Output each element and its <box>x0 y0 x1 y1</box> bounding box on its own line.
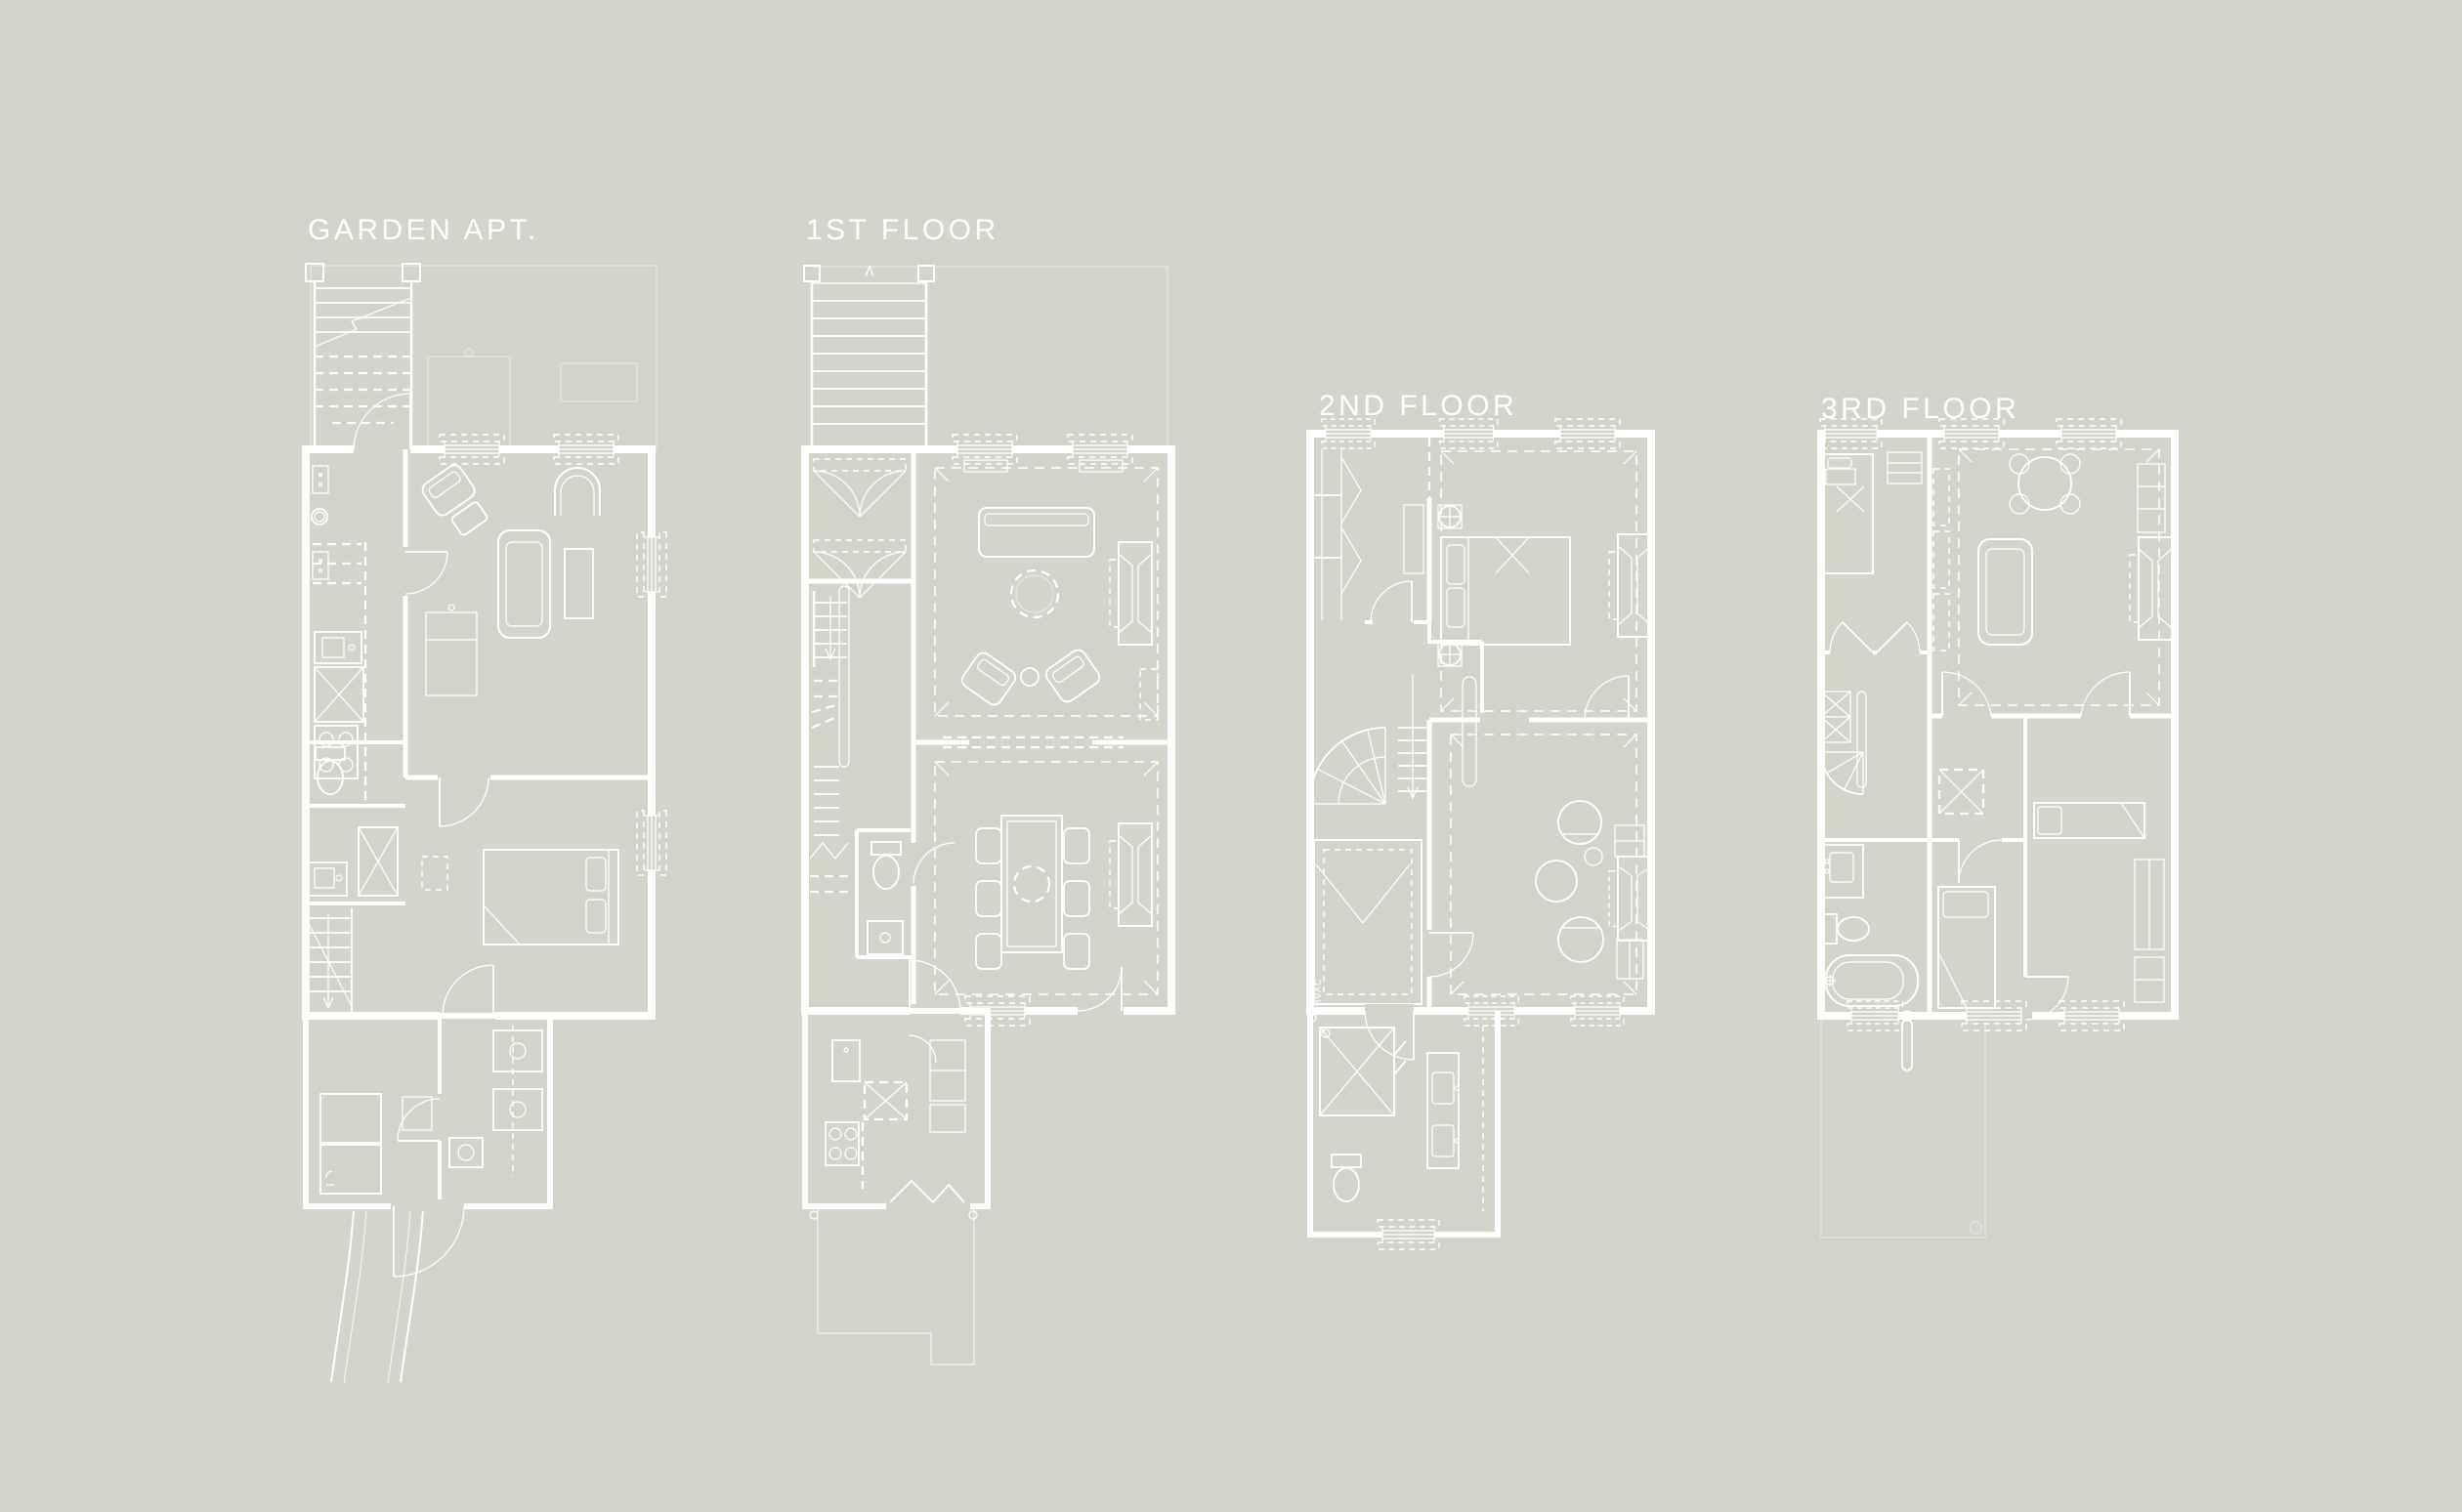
fireplace-icon <box>2130 537 2172 640</box>
range-icon <box>826 1122 859 1165</box>
utility-extension <box>306 1016 550 1277</box>
bench <box>1404 505 1423 573</box>
bed-icon <box>1824 454 1873 573</box>
linen-closet <box>359 827 398 896</box>
window-icon <box>1322 419 1375 448</box>
window-icon <box>554 435 618 464</box>
sofa-icon <box>1978 539 2032 645</box>
plan-title-third-floor: 3RD FLOOR <box>1821 393 2019 426</box>
entry-stair <box>306 264 420 449</box>
toilet-icon <box>1824 914 1869 944</box>
hall-door <box>1371 581 1414 629</box>
nursery-door <box>1422 930 1473 977</box>
bath-vanity <box>308 862 347 896</box>
hall <box>1821 692 2068 1022</box>
barrel-chair-icon <box>1558 917 1603 962</box>
double-vanity-icon <box>1427 1053 1459 1168</box>
armchair-icon <box>959 650 1019 707</box>
garden-door <box>391 1199 464 1277</box>
sink-icon <box>349 645 355 651</box>
winder-stair <box>1821 692 1866 794</box>
bed-icon <box>484 850 618 945</box>
bed-icon <box>1441 537 1570 645</box>
living-room <box>1930 449 2175 723</box>
range-icon <box>315 726 358 778</box>
cased-opening <box>913 735 1171 749</box>
window-seat <box>964 460 1007 472</box>
bed-icon <box>2034 803 2144 838</box>
side-table-icon <box>1021 668 1039 686</box>
kitchen <box>805 1011 988 1213</box>
plan-title-second-floor: 2ND FLOOR <box>1319 390 1517 423</box>
fireplace-icon <box>1609 857 1651 941</box>
roof-below <box>1821 1011 1985 1238</box>
bedroom-door <box>1830 622 1873 659</box>
stair-down <box>306 908 352 1016</box>
window-icon <box>1555 419 1620 448</box>
stair-hall <box>1312 438 1429 629</box>
shower-icon <box>868 921 903 954</box>
entry-vestibule <box>805 449 913 742</box>
entry-door <box>354 394 410 456</box>
shower-icon <box>1320 1028 1406 1115</box>
second-bedroom <box>1930 833 2025 1008</box>
window-icon <box>2057 419 2121 448</box>
third-floor-drawing <box>1812 430 2203 1289</box>
cabinet <box>930 1105 965 1132</box>
fireplace-icon <box>1110 542 1152 645</box>
stair <box>810 586 853 892</box>
bench <box>403 1097 432 1130</box>
window-icon <box>637 811 666 875</box>
pantry <box>865 1082 907 1119</box>
stoop-stair <box>804 266 934 449</box>
hall-door <box>1877 622 1920 659</box>
round-table-icon <box>1536 861 1577 902</box>
side-table-icon <box>1585 848 1602 865</box>
floor-plans-sheet: GARDEN APT. <box>0 0 2462 1512</box>
bedroom-door <box>1959 833 2002 883</box>
front-yard <box>812 267 1167 449</box>
bedroom-door <box>438 771 490 826</box>
storage-shelves <box>320 1145 381 1194</box>
window-icon <box>2059 1001 2124 1030</box>
living-door <box>2081 672 2130 723</box>
sofa-icon <box>498 530 550 638</box>
chair-icon <box>976 934 1001 969</box>
round-table-icon <box>1011 570 1058 617</box>
living-room <box>419 462 600 638</box>
hvac-label: HVAC <box>1313 979 1323 1006</box>
centerpiece <box>1014 866 1049 902</box>
sitting-room <box>1451 735 1651 994</box>
bedroom <box>1821 434 1949 716</box>
rear-door <box>1078 967 1124 1018</box>
coat-closet <box>814 459 906 517</box>
bath-door <box>1365 1004 1414 1060</box>
sofa-icon <box>979 508 1094 557</box>
refrigerator-icon <box>315 667 363 722</box>
vanity-icon <box>1824 845 1863 898</box>
window-icon <box>637 532 666 597</box>
washer-icon <box>449 1138 483 1167</box>
laundry-sink-icon <box>493 1026 542 1177</box>
winder-stair <box>1309 622 1482 804</box>
hall-door <box>399 547 447 596</box>
barrel-chair-icon <box>1558 801 1601 844</box>
fireplace-icon <box>1110 823 1152 926</box>
bed-icon <box>1938 887 1995 1008</box>
toilet-icon <box>871 842 901 889</box>
living-room <box>935 468 1158 720</box>
console-table-icon <box>565 549 593 618</box>
chair-icon <box>1064 828 1089 863</box>
refrigerator-icon <box>832 1040 860 1081</box>
window-icon <box>1378 1220 1439 1249</box>
plan-title-garden-apt: GARDEN APT. <box>308 214 539 247</box>
closet <box>1933 531 1949 588</box>
bathtub-icon <box>1824 955 1918 1006</box>
plan-title-first-floor: 1ST FLOOR <box>806 214 999 247</box>
armchair-icon <box>1043 647 1103 704</box>
second-floor-drawing: HVAC <box>1304 430 1695 1250</box>
first-floor-drawing <box>796 259 1187 1382</box>
window-icon <box>1464 996 1518 1026</box>
round-table-icon <box>2010 454 2080 514</box>
exterior-walls <box>805 449 1171 1011</box>
deck <box>810 1206 977 1365</box>
shelving <box>2138 464 2165 532</box>
fireplace-icon <box>555 468 600 516</box>
opening <box>1480 713 1529 727</box>
closet <box>1933 469 1949 525</box>
hall-cabinet <box>426 605 477 695</box>
closet <box>422 857 447 890</box>
exterior-walls <box>1821 434 2175 1016</box>
coat-closet <box>814 540 906 598</box>
dining-room <box>935 762 1158 994</box>
master-bedroom <box>1441 451 1651 727</box>
garden-path <box>331 1211 423 1384</box>
window-icon <box>1440 419 1498 448</box>
chair-icon <box>976 828 1001 863</box>
chair-icon <box>976 881 1001 916</box>
closet <box>1933 594 1949 651</box>
bathroom <box>1821 840 1930 1006</box>
window-icon <box>1571 996 1624 1026</box>
electrical-panels <box>312 466 328 579</box>
chair-icon <box>1064 934 1089 969</box>
bedroom <box>422 850 618 1023</box>
bathroom <box>1310 1004 1498 1249</box>
garden-apt-drawing <box>293 259 684 1411</box>
dining-table-icon <box>1001 816 1062 952</box>
hall-closet <box>1939 770 1983 814</box>
nursery: HVAC <box>1308 720 1473 1022</box>
storage-shelves <box>320 1094 381 1143</box>
fireplace-icon <box>1609 534 1651 637</box>
window-seat <box>1080 460 1123 472</box>
nightstand-icon <box>1888 452 1922 483</box>
bifold-door <box>886 1181 970 1213</box>
window-icon <box>440 435 504 464</box>
armchair-icon <box>419 462 493 540</box>
crib-icon <box>1314 840 1422 1004</box>
toilet-icon <box>1332 1155 1361 1201</box>
third-bedroom <box>2034 803 2164 1002</box>
chair-icon <box>1064 881 1089 916</box>
window-seat <box>1140 669 1158 720</box>
